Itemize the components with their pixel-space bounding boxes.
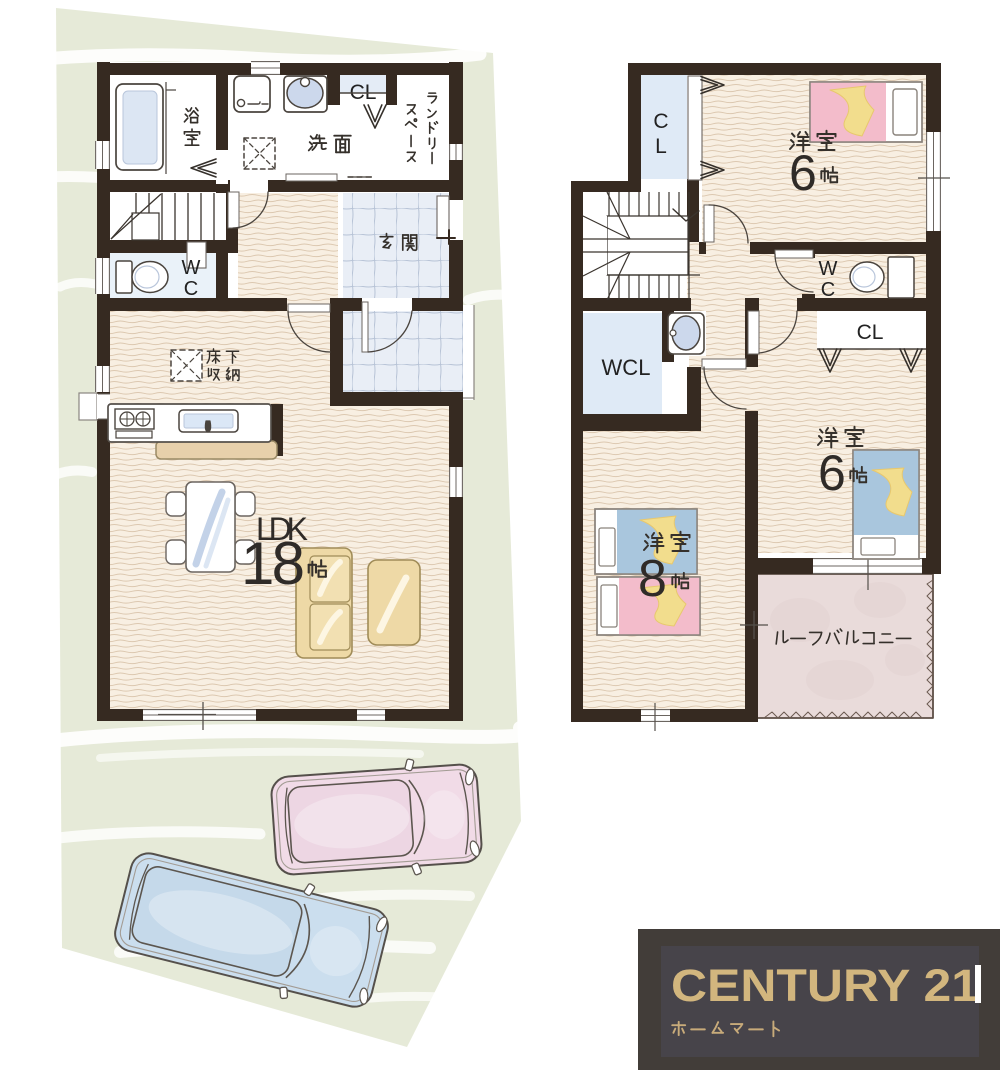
svg-text:18: 18: [241, 530, 305, 597]
svg-text:WCL: WCL: [602, 355, 651, 380]
svg-text:CENTURY 21: CENTURY 21: [671, 960, 979, 1011]
svg-text:8: 8: [638, 550, 667, 608]
svg-text:W: W: [182, 257, 201, 279]
svg-text:C: C: [184, 278, 198, 300]
svg-text:6: 6: [818, 445, 846, 501]
svg-text:C: C: [821, 279, 835, 301]
svg-text:C: C: [653, 110, 668, 133]
svg-text:CL: CL: [857, 321, 884, 344]
svg-text:6: 6: [789, 145, 817, 201]
svg-text:L: L: [655, 135, 667, 158]
svg-text:W: W: [819, 258, 838, 280]
